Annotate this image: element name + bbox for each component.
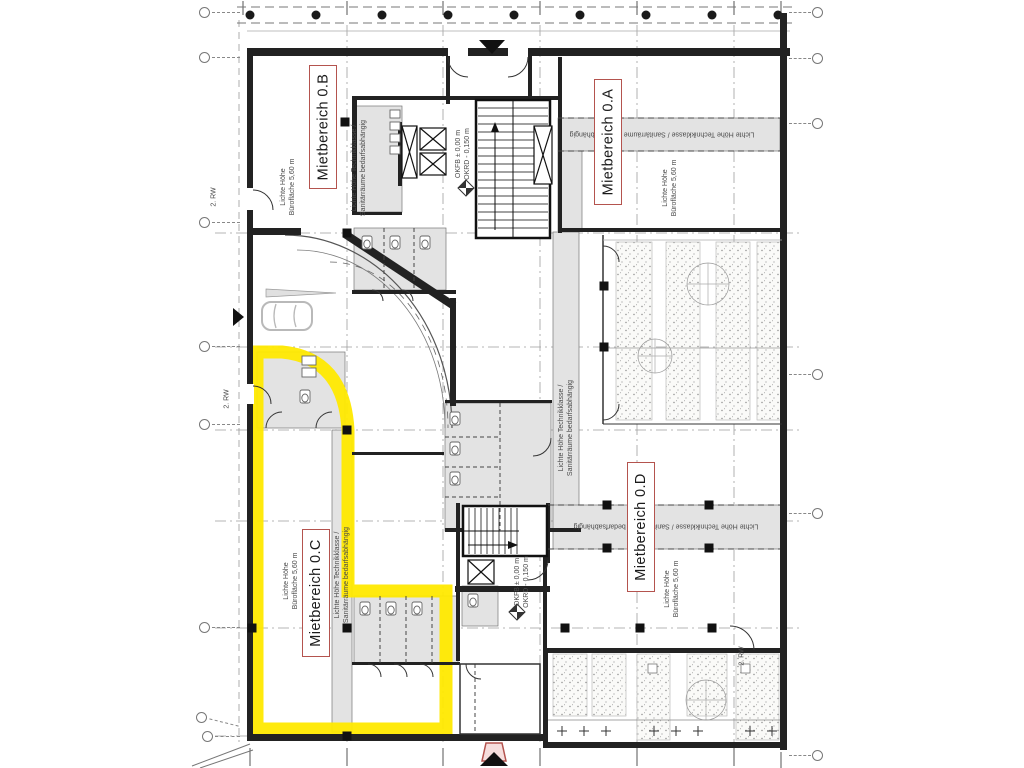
annotation-level-top: OKFB ± 0,00 m OKRD - 0,150 m: [454, 128, 472, 180]
grid-leader: [789, 12, 811, 13]
area-label-c-text: Mietbereich 0.C: [308, 539, 324, 647]
grid-bubble: [199, 217, 210, 228]
annotation-escape-route-2: 2. RW: [222, 389, 231, 408]
area-label-a: Mietbereich 0.A: [594, 79, 622, 205]
grid-leader: [789, 58, 811, 59]
grid-bubble: [199, 622, 210, 633]
south-planting: [545, 654, 783, 740]
grid-leader: [789, 755, 811, 756]
area-label-b: Mietbereich 0.B: [309, 65, 337, 189]
area-label-c: Mietbereich 0.C: [302, 529, 330, 657]
entrance-arrow-left: [233, 308, 244, 326]
grid-bubble: [199, 419, 210, 430]
annotation-escape-route-1: 2. RW: [209, 187, 218, 206]
grid-leader: [789, 123, 811, 124]
area-label-d: Mietbereich 0.D: [627, 462, 655, 592]
grid-bubble: [812, 53, 823, 64]
level-marker-top: [458, 180, 474, 196]
area-label-a-text: Mietbereich 0.A: [600, 89, 616, 196]
annotation-tech-b: Lichte Höhe Technikklasse / Sanitärräume…: [350, 120, 368, 216]
grid-bubble: [199, 341, 210, 352]
annotation-tech-c: Lichte Höhe Technikklasse / Sanitärräume…: [333, 527, 351, 623]
area-label-d-text: Mietbereich 0.D: [633, 473, 649, 581]
floor-plan-linework: [0, 0, 1024, 768]
grid-leader: [789, 374, 811, 375]
grid-leader: [212, 222, 240, 223]
grid-leader: [212, 346, 240, 347]
grid-leader: [212, 627, 240, 628]
canopy-band: [237, 7, 792, 31]
annotation-office-height-c: Lichte Höhe Bürofläche 5,60 m: [282, 553, 300, 610]
grid-bubble: [812, 508, 823, 519]
annotation-level-bottom: OKFB ± 0,00 m OKRD - 0,150 m: [513, 556, 531, 608]
grid-bubble: [199, 52, 210, 63]
grid-bubble: [812, 750, 823, 761]
grid-leader: [789, 513, 811, 514]
annotation-escape-route-3: 2. RW: [737, 646, 746, 665]
grid-leader: [215, 736, 240, 737]
annotation-office-height-a: Lichte Höhe Bürofläche 5,60 m: [661, 160, 679, 217]
car-icon: [262, 302, 312, 330]
grid-bubble: [196, 712, 207, 723]
grid-leader: [212, 424, 240, 425]
courtyard-planting: [604, 242, 782, 420]
grid-bubble: [812, 118, 823, 129]
grid-leader: [212, 57, 240, 58]
annotation-tech-band-d: Lichte Höhe Technikklasse / Sanitärräume…: [574, 523, 759, 530]
annotation-office-height-d: Lichte Höhe Bürofläche 5,60 m: [663, 561, 681, 618]
annotation-tech-corridor: Lichte Höhe Technikklasse / Sanitärräume…: [557, 380, 575, 476]
barrier-arm: [266, 289, 336, 297]
grid-bubble: [812, 369, 823, 380]
annotation-office-height-b: Lichte Höhe Bürofläche 5,60 m: [279, 159, 297, 216]
grid-leader: [212, 12, 240, 13]
canopy-columns: [246, 11, 783, 20]
floor-plan: Mietbereich 0.B Mietbereich 0.A Mietbere…: [0, 0, 1024, 768]
area-label-b-text: Mietbereich 0.B: [315, 74, 331, 181]
grid-bubble: [199, 7, 210, 18]
grid-bubble: [202, 731, 213, 742]
grid-bubble: [812, 7, 823, 18]
